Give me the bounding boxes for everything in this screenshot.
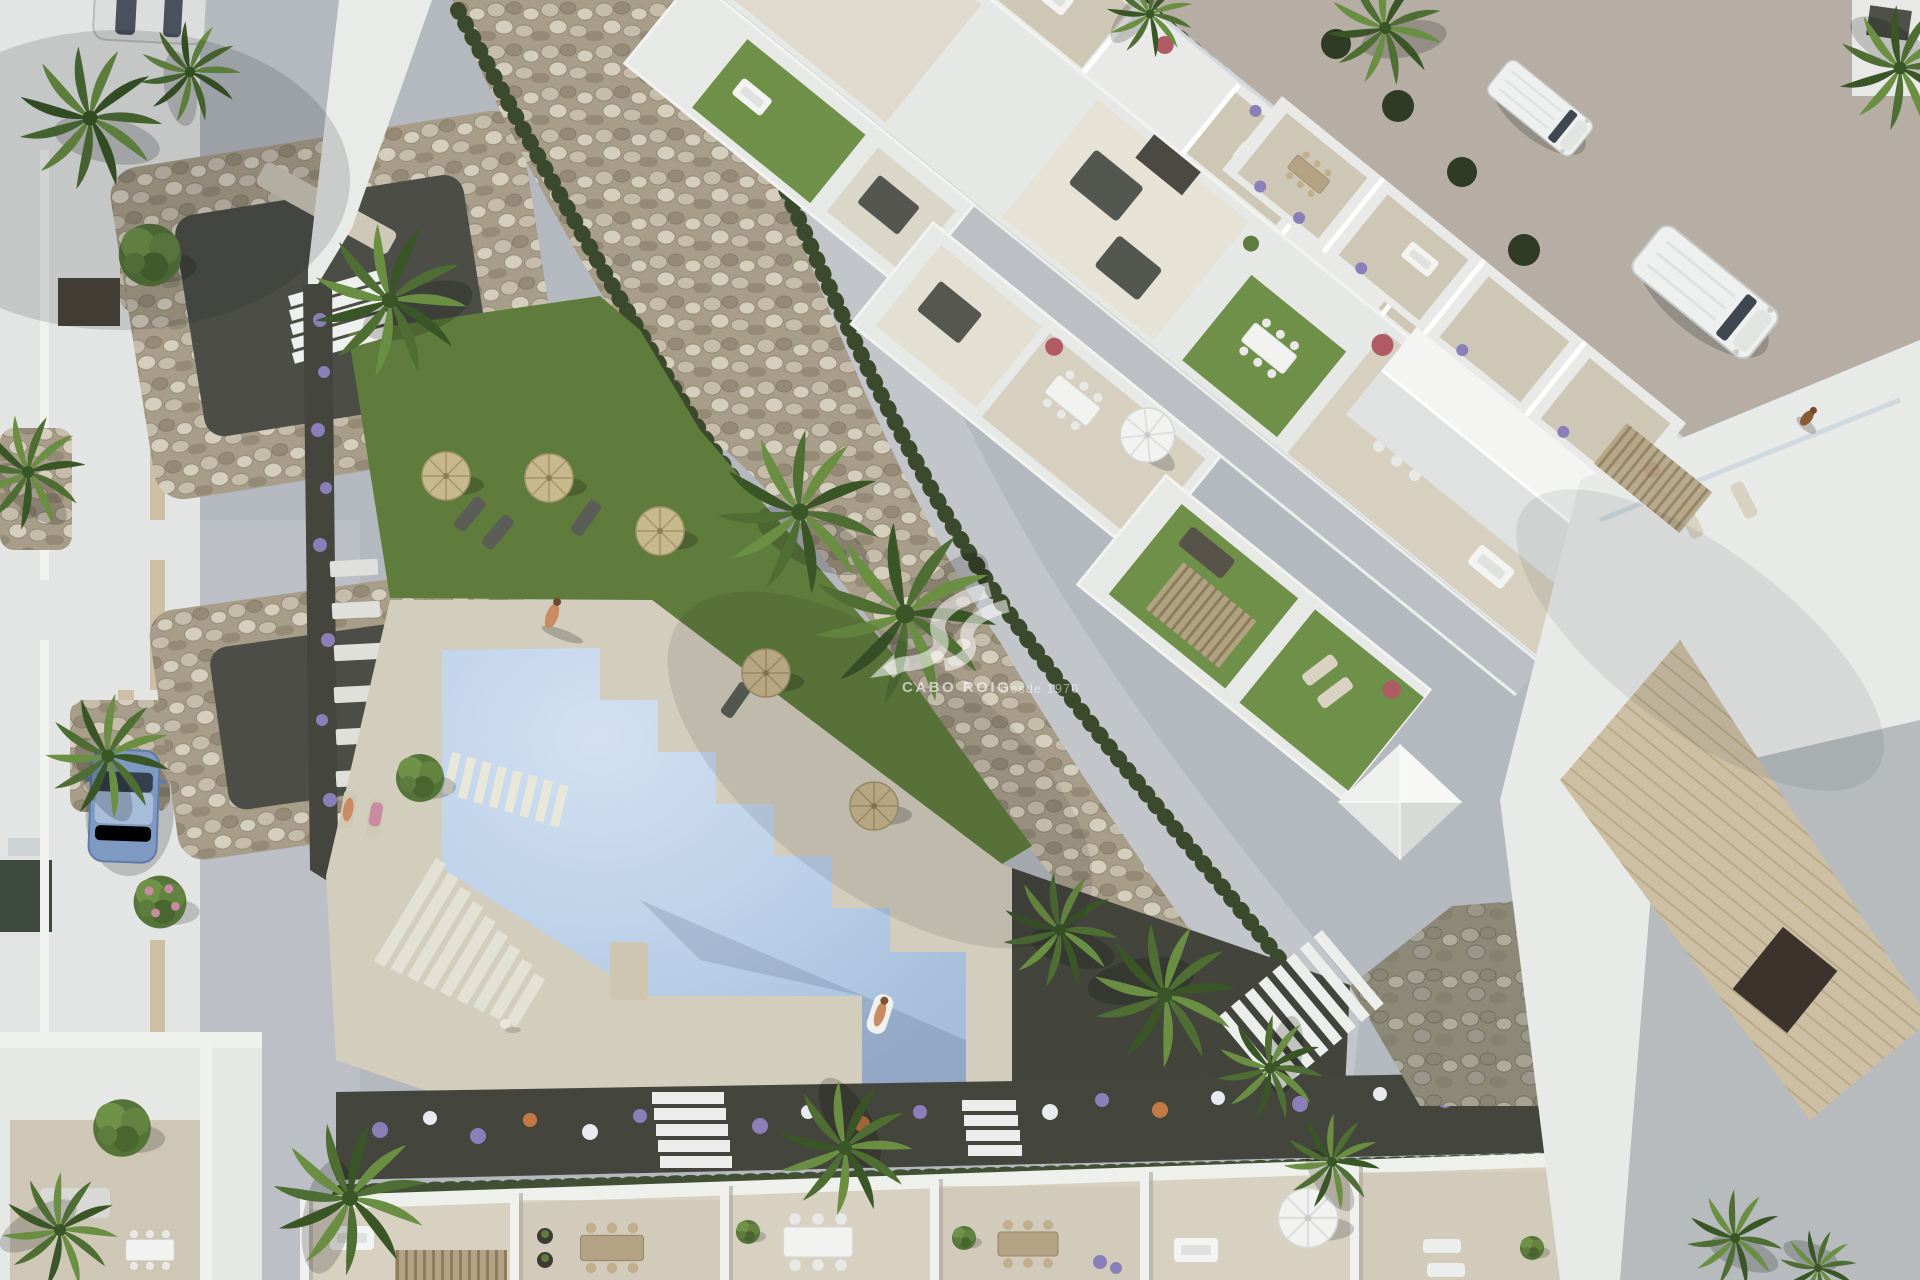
watermark-brand: CABO ROIG [902, 679, 1011, 696]
pergola [395, 1250, 507, 1280]
diving-platform [610, 942, 648, 1000]
duck [500, 1019, 510, 1029]
render-canvas: CABO ROIG Desde 1970 [0, 0, 1920, 1280]
aerial-render-image: CABO ROIG Desde 1970 [0, 0, 1920, 1280]
watermark-tagline: Desde 1970 [1000, 682, 1079, 696]
